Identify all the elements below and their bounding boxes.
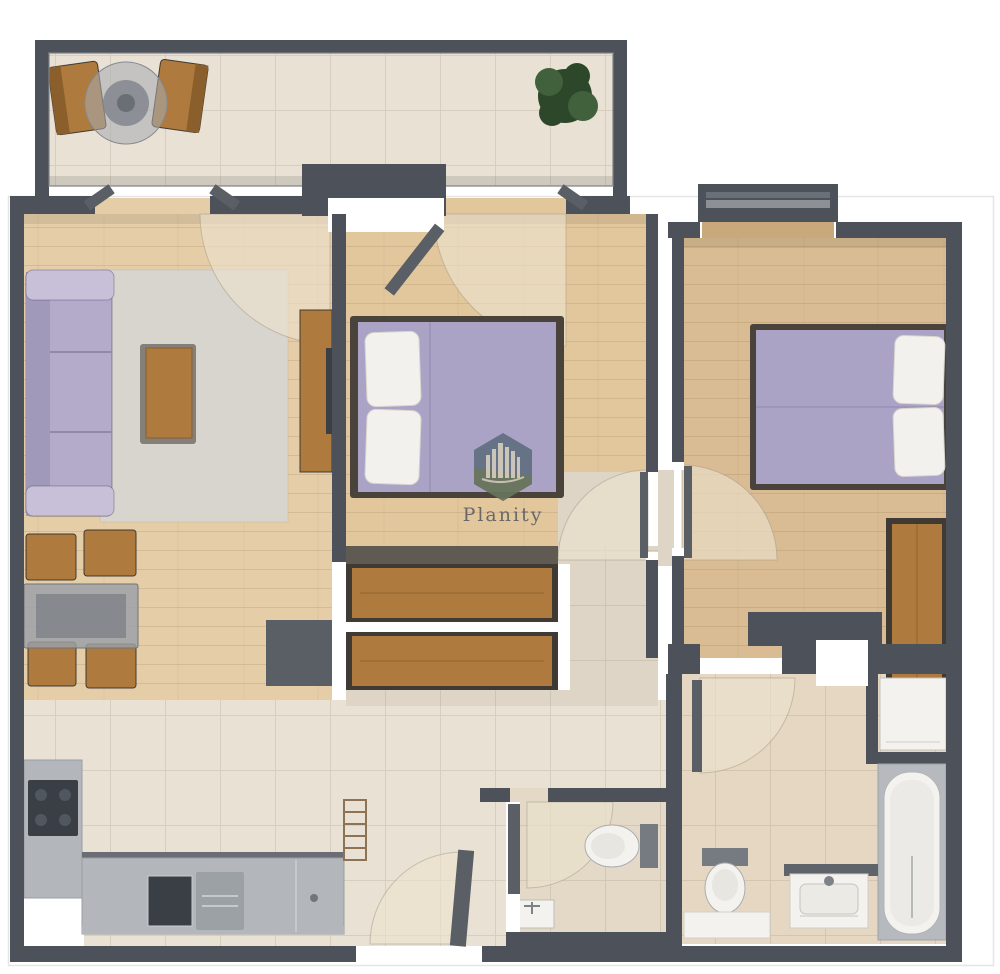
pillow bbox=[893, 407, 945, 477]
dining-chair bbox=[86, 644, 136, 688]
watermark-text: Planity bbox=[463, 504, 544, 526]
dresser bbox=[346, 564, 558, 622]
bath-cabinet bbox=[684, 912, 770, 938]
pillow bbox=[893, 335, 945, 405]
outer-wall-left bbox=[10, 196, 24, 962]
stove bbox=[148, 876, 192, 926]
vanity-sink bbox=[784, 864, 878, 928]
toilet bbox=[585, 824, 658, 868]
faucet bbox=[824, 876, 834, 886]
balcony-table bbox=[85, 62, 167, 144]
bathroom-door-leaf bbox=[692, 680, 702, 772]
outer-wall-bottom bbox=[10, 946, 368, 962]
coffee-table bbox=[140, 344, 196, 444]
bedroom-2-door-leaf bbox=[684, 466, 692, 558]
tv-screen bbox=[326, 348, 332, 434]
potted-plant bbox=[535, 63, 598, 126]
kitchen-faucet bbox=[310, 894, 318, 902]
sofa bbox=[26, 270, 114, 516]
pillow bbox=[365, 409, 422, 485]
wc-door-leaf bbox=[508, 804, 520, 894]
balcony-wall bbox=[35, 40, 49, 196]
dining-chair bbox=[26, 534, 76, 580]
floor-plan-page: Planity bbox=[0, 0, 1000, 974]
bedroom-1-door-leaf bbox=[640, 472, 648, 558]
dishwasher bbox=[196, 872, 244, 930]
dining-chair bbox=[28, 642, 76, 686]
window-sill bbox=[702, 222, 834, 238]
floor-plan-image: Planity bbox=[0, 0, 1000, 974]
outer-wall-right bbox=[946, 222, 962, 962]
balcony-wall bbox=[35, 40, 627, 53]
tv-stand bbox=[300, 310, 332, 472]
bedroom-1-lower-wall bbox=[346, 546, 558, 566]
double-bed bbox=[750, 324, 950, 490]
dresser bbox=[346, 632, 558, 690]
empty-nook bbox=[24, 898, 84, 946]
cooktop bbox=[28, 780, 78, 836]
refrigerator bbox=[266, 620, 332, 686]
toilet-tank bbox=[640, 824, 658, 868]
dining-chair bbox=[84, 530, 136, 576]
window bbox=[698, 184, 838, 238]
bathtub bbox=[878, 764, 946, 940]
balcony-wall bbox=[613, 40, 627, 196]
outer-wall-bottom bbox=[470, 946, 960, 962]
pillow bbox=[365, 331, 422, 407]
